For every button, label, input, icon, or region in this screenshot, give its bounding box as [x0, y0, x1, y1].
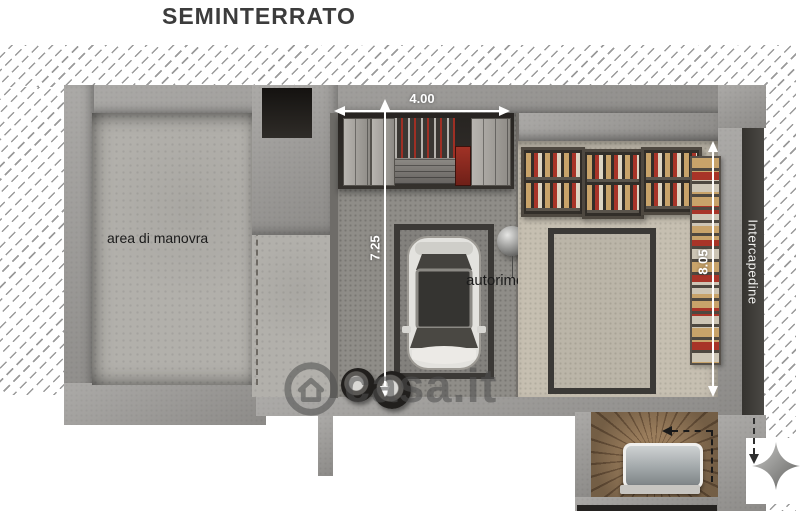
dimension-arrow-down-icon — [708, 386, 718, 397]
room-maneuver-area-floor — [92, 113, 254, 385]
tool-cabinet-right — [471, 118, 511, 186]
stair-landing-glass — [623, 443, 703, 489]
wall-niche — [262, 88, 312, 138]
wall-right — [718, 128, 744, 415]
tool-cabinet-left-2 — [371, 118, 395, 186]
shelf-items — [526, 153, 580, 180]
cavity-direction-arrow-icon — [749, 454, 759, 464]
stair-landing-step — [620, 485, 700, 494]
dimension-arrow-up-icon — [708, 141, 718, 152]
watermark-house-icon — [282, 360, 340, 423]
wall-top-right-section — [512, 113, 718, 141]
dimension-arrow-up-icon — [380, 99, 390, 110]
stair-bottom-shadow — [577, 505, 717, 511]
pegboard-tools — [395, 118, 455, 158]
garage-left-wall-edge — [330, 113, 338, 398]
wall-stub-bottom — [318, 416, 333, 476]
floor-plan-canvas: SEMINTERRATO area di manovra — [0, 0, 800, 511]
watermark-text: casa.it — [344, 358, 497, 413]
shelf-unit — [521, 147, 585, 217]
stair-direction-line — [711, 430, 713, 482]
garage-tool-wall — [338, 113, 514, 189]
earth-hatch-left — [0, 87, 66, 395]
shelf-items — [587, 155, 639, 182]
car-top-view-icon — [402, 234, 486, 372]
wall-bottom-left-room — [64, 383, 266, 425]
earth-hatch-top — [0, 45, 796, 87]
shelf-items — [587, 185, 639, 212]
dimension-arrow-left-icon — [334, 106, 345, 116]
parking-spot-2 — [548, 228, 656, 394]
dimension-storage-depth: 8.05 — [696, 249, 711, 274]
wall-stair-left — [575, 412, 591, 500]
page-title: SEMINTERRATO — [162, 3, 356, 30]
dimension-arrow-right-icon — [499, 106, 510, 116]
maneuver-area-label: area di manovra — [107, 230, 208, 246]
dimension-line-garage-depth — [384, 106, 386, 392]
stair-direction-line — [672, 430, 712, 432]
dimension-garage-width: 4.00 — [337, 91, 507, 106]
shelf-items — [526, 183, 580, 210]
red-tool-chest — [455, 146, 471, 186]
workbench-drawers — [395, 158, 455, 184]
shelf-unit — [582, 149, 644, 219]
cavity-direction-line — [753, 418, 755, 454]
wall-top-right-corner — [718, 85, 766, 128]
tool-cabinet-left — [343, 118, 371, 186]
cavity-label: Intercapedine — [746, 219, 761, 304]
dimension-garage-depth: 7.25 — [368, 235, 383, 260]
north-star-icon — [752, 442, 800, 490]
stair-direction-arrow-icon — [662, 426, 672, 436]
wall-left — [64, 85, 94, 425]
dimension-line-storage-depth — [712, 148, 714, 392]
dimension-line-garage-width — [337, 110, 507, 112]
